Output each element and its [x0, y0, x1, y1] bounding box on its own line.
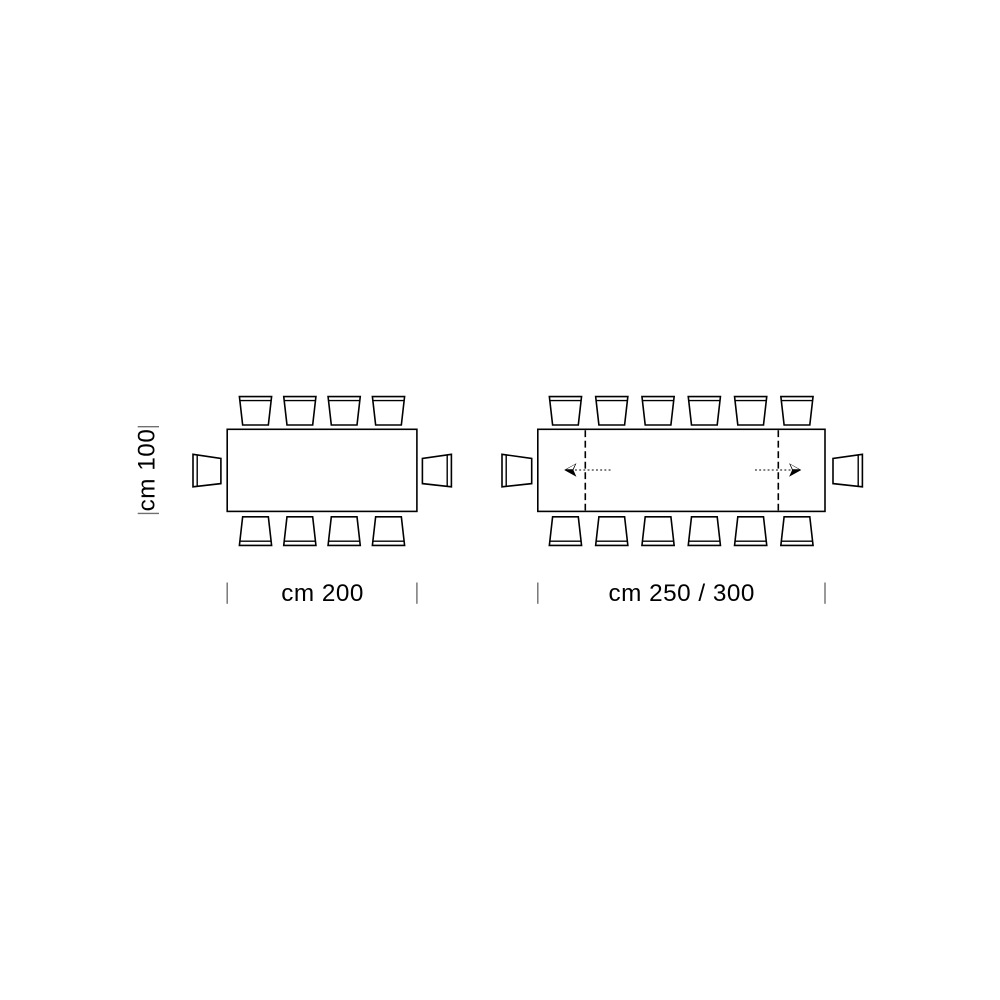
svg-text:cm 200: cm 200 — [281, 580, 364, 607]
svg-text:cm 100: cm 100 — [133, 429, 160, 512]
svg-text:cm 250 / 300: cm 250 / 300 — [608, 580, 754, 607]
